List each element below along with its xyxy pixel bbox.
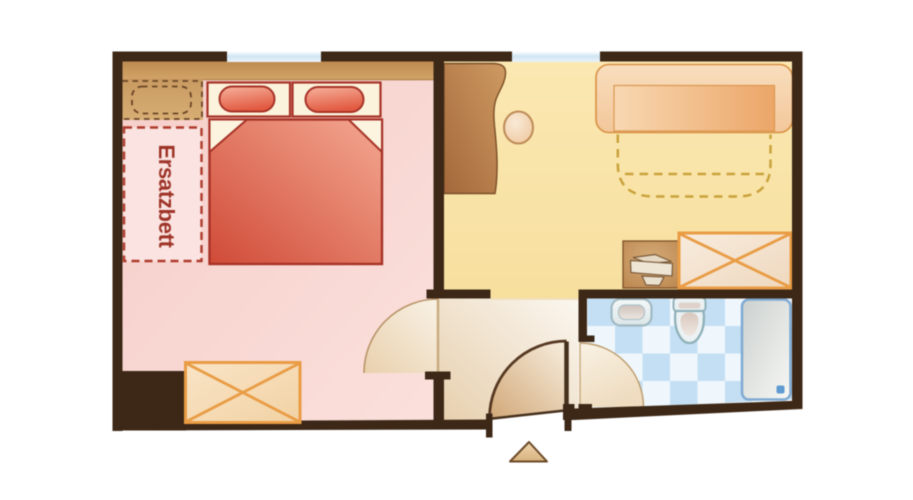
svg-text:Ersatzbett: Ersatzbett — [154, 144, 179, 248]
